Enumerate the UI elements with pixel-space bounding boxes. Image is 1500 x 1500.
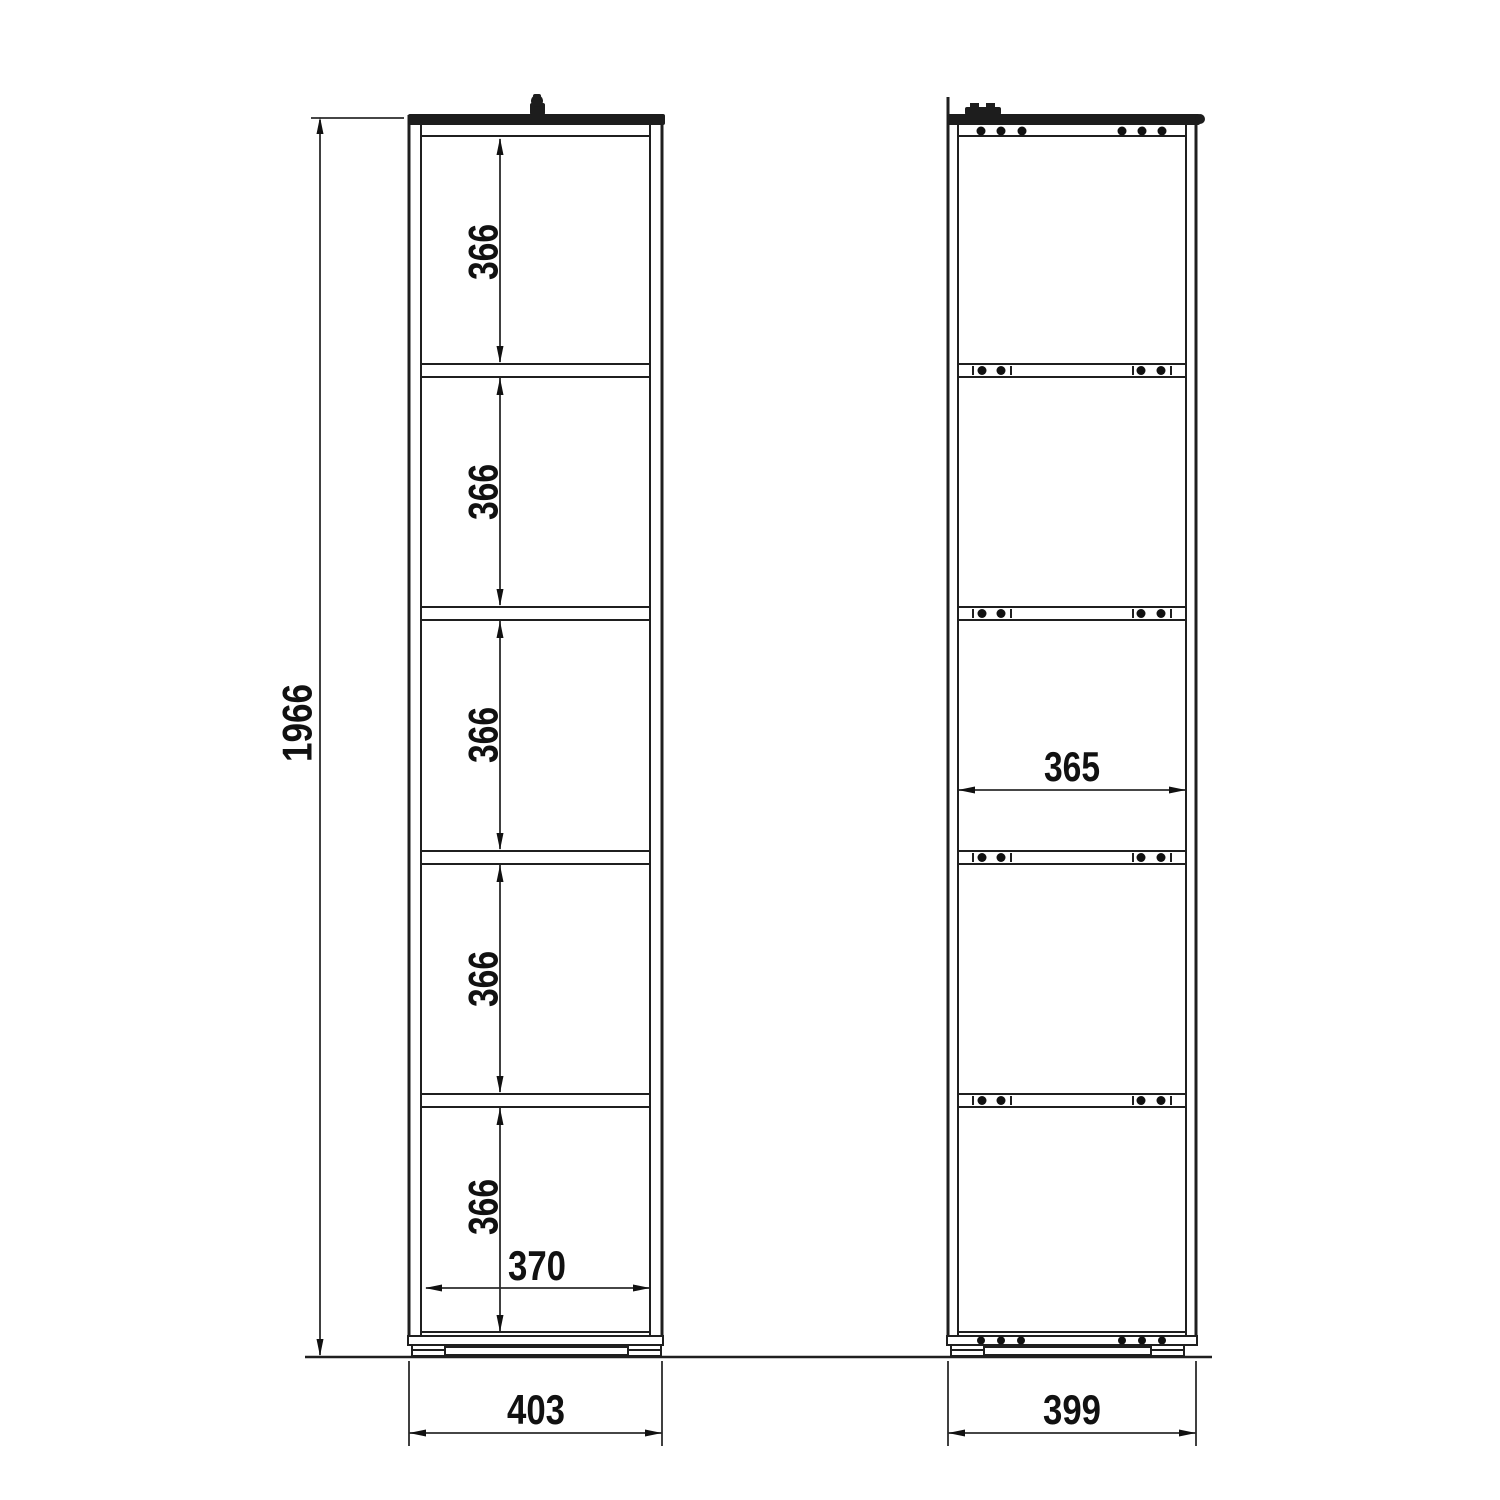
inner-depth-dimension: 365 xyxy=(958,743,1186,794)
outer-depth-dimension: 399 xyxy=(948,1361,1196,1446)
shelf-spacing-label-2: 366 xyxy=(460,464,507,520)
shelf-unit-dimension-drawing: 1966 366 366 366 366 366 370 xyxy=(0,0,1500,1500)
side-shelf-1 xyxy=(958,364,1186,377)
side-shelf-3 xyxy=(958,851,1186,864)
side-shelf-2 xyxy=(958,607,1186,620)
side-plinth xyxy=(984,1347,1151,1355)
shelf-spacing-label-5: 366 xyxy=(460,1179,507,1235)
side-view-base xyxy=(947,1332,1197,1356)
inner-depth-label: 365 xyxy=(1044,743,1100,790)
wall-bracket-icon xyxy=(965,103,1001,115)
side-shelf-4 xyxy=(958,1094,1186,1107)
front-view-base xyxy=(408,1332,663,1356)
shelf-spacing-label-1: 366 xyxy=(460,224,507,280)
front-top-panel xyxy=(408,114,665,125)
side-view-walls xyxy=(948,97,1196,1345)
front-plinth xyxy=(445,1347,628,1355)
technical-drawing-page: 1966 366 366 366 366 366 370 xyxy=(0,0,1500,1500)
inner-width-dimension: 370 xyxy=(425,1242,650,1292)
outer-width-dimension: 403 xyxy=(409,1361,662,1446)
side-view-shelves xyxy=(958,364,1186,1107)
overall-height-label: 1966 xyxy=(274,684,321,762)
top-screw-dots xyxy=(977,127,1167,136)
wall-mount-knob-icon xyxy=(530,94,545,115)
front-view-walls xyxy=(409,115,662,1345)
front-view-shelves xyxy=(421,364,650,1107)
inner-width-label: 370 xyxy=(508,1242,566,1289)
side-view xyxy=(947,97,1205,1356)
outer-depth-label: 399 xyxy=(1043,1386,1101,1433)
outer-width-label: 403 xyxy=(507,1386,565,1433)
shelf-spacing-label-4: 366 xyxy=(460,951,507,1007)
height-dimension: 1966 xyxy=(274,117,404,1356)
shelf-spacing-label-3: 366 xyxy=(460,707,507,763)
shelf-spacing-dimension-chain: 366 366 366 366 366 xyxy=(460,138,507,1332)
front-view xyxy=(408,94,665,1356)
side-top-panel xyxy=(947,114,1200,125)
